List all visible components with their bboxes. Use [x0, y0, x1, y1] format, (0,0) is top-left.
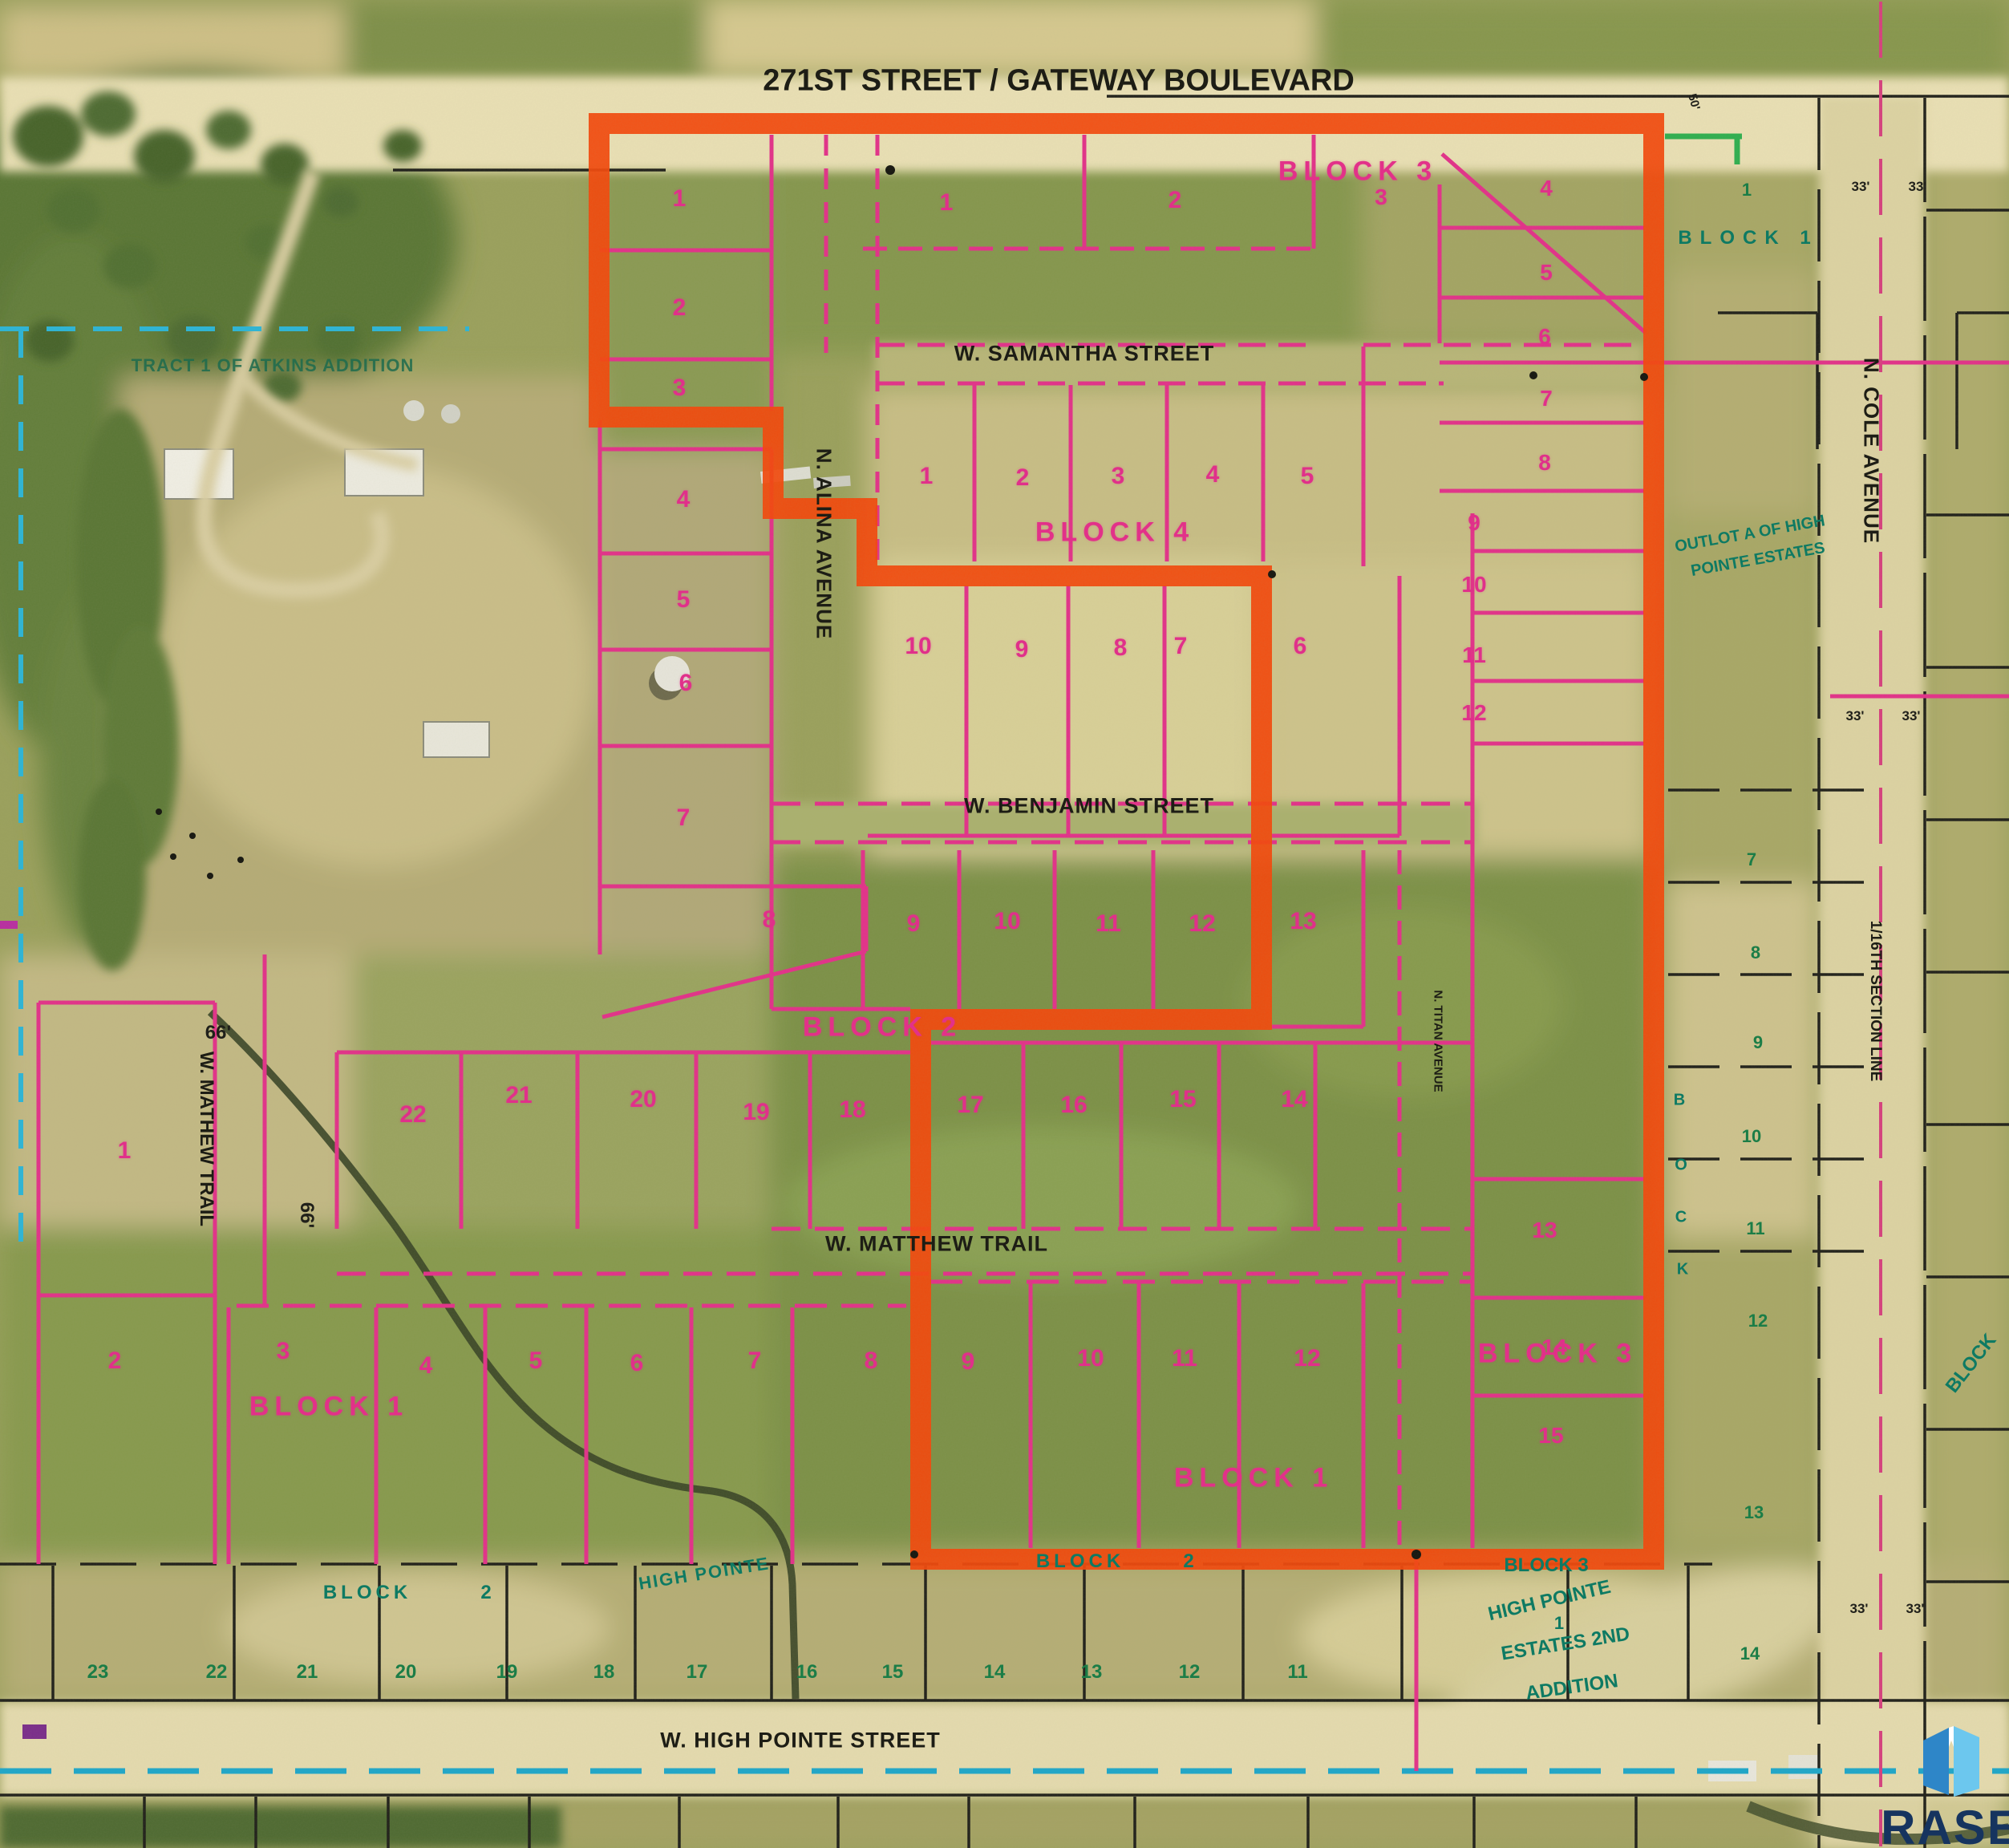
hp2-label: ESTATES 2ND: [1500, 1623, 1631, 1666]
adj-block-letter: B: [1674, 1092, 1685, 1110]
lot-number: 4: [1540, 176, 1553, 201]
lot-number: 9: [1468, 510, 1480, 536]
lot-number: 6: [679, 670, 693, 697]
lot-number: 6: [630, 1350, 644, 1377]
dim-66: 66': [295, 1202, 318, 1228]
rase-logo-icon: [1893, 1723, 2009, 1803]
hp-label: HIGH POINTE: [637, 1553, 771, 1594]
lot-number: 10: [1461, 572, 1486, 598]
adj-block-letter: O: [1675, 1157, 1687, 1175]
hp-block-label: BLOCK: [323, 1582, 411, 1604]
lot-number: 13: [1532, 1218, 1557, 1243]
street-cole: N. COLE AVENUE: [1859, 358, 1884, 544]
street-271st-gateway: 271ST STREET / GATEWAY BOULEVARD: [763, 64, 1355, 99]
hp-lot-number: 17: [687, 1661, 708, 1684]
adj-lot-number: 9: [1753, 1032, 1763, 1053]
lot-number: 7: [677, 804, 691, 832]
street-samantha: W. SAMANTHA STREET: [954, 342, 1215, 367]
lot-number: 5: [677, 586, 691, 614]
lot-number: 2: [108, 1347, 122, 1375]
lot-number: 2: [673, 294, 687, 322]
rase-logo-text: RASE: [1881, 1800, 2009, 1848]
dim-33: 33': [1850, 1601, 1869, 1617]
adj-block-1-label: BLOCK 1: [1678, 227, 1818, 249]
lot-number: 1: [118, 1137, 132, 1165]
hp2-label: HIGH POINTE: [1486, 1576, 1613, 1626]
lot-number: 10: [905, 633, 931, 660]
hp-lot-number: 15: [882, 1661, 904, 1684]
hp-block-label: 2: [1183, 1550, 1193, 1573]
street-high-pointe: W. HIGH POINTE STREET: [660, 1728, 941, 1753]
dim-50: 50': [1685, 92, 1703, 111]
hp-lot-number: 22: [206, 1661, 228, 1684]
lot-number: 12: [1294, 1345, 1320, 1372]
hp-lot-number: 19: [496, 1661, 518, 1684]
adj-block-letter: C: [1675, 1209, 1687, 1227]
hp-lot-number: 18: [593, 1661, 615, 1684]
lot-number: 8: [1114, 634, 1128, 662]
adj-lot-number: 12: [1748, 1311, 1768, 1331]
lot-number: 5: [1540, 260, 1553, 286]
lot-number: 1: [920, 463, 934, 490]
lot-number: 9: [1015, 636, 1029, 663]
hp-block-label: 2: [480, 1582, 491, 1604]
lot-number: 6: [1294, 633, 1307, 660]
hp-lot-number: 11: [1287, 1661, 1307, 1684]
lot-number: 5: [529, 1347, 543, 1375]
hp2-label: 1: [1554, 1613, 1564, 1634]
adj-block-letter: K: [1677, 1261, 1688, 1279]
lot-number: 3: [1375, 184, 1387, 210]
block-3-label: BLOCK 3: [1278, 156, 1437, 188]
lot-number: 21: [505, 1082, 532, 1109]
rase-logo: RASE: [1893, 1723, 2009, 1848]
hp-lot-number: 16: [796, 1661, 818, 1684]
lot-number: 20: [630, 1086, 656, 1113]
lot-number: 2: [1016, 464, 1030, 492]
street-titan: N. TITAN AVENUE: [1432, 990, 1445, 1092]
dim-33: 33': [1906, 1601, 1925, 1617]
adj-lot-number: 1: [1742, 180, 1752, 201]
lot-number: 19: [743, 1099, 769, 1126]
lot-number: 14: [1281, 1086, 1307, 1113]
adj-lot-number: 11: [1746, 1218, 1764, 1239]
section-line-label: 1/16TH SECTION LINE: [1866, 921, 1884, 1082]
hp2-label: ADDITION: [1525, 1670, 1620, 1705]
lot-number: 6: [1538, 324, 1551, 350]
lot-number: 17: [957, 1092, 983, 1119]
hp2-label: BLOCK 3: [1504, 1554, 1588, 1577]
hp-lot-number: 23: [87, 1661, 109, 1684]
lot-number: 4: [677, 486, 691, 513]
lot-number: 9: [962, 1348, 975, 1376]
plat-text-overlay: 271ST STREET / GATEWAY BOULEVARDW. SAMAN…: [0, 0, 2009, 1848]
lot-number: 15: [1538, 1423, 1563, 1449]
street-benjamin: W. BENJAMIN STREET: [964, 794, 1214, 819]
lot-number: 7: [1540, 386, 1553, 411]
lot-number: 8: [1538, 450, 1551, 476]
lot-number: 2: [1169, 187, 1182, 214]
adj-lot-number: 13: [1744, 1502, 1764, 1523]
lot-number: 18: [839, 1096, 865, 1124]
lot-number: 3: [1112, 463, 1125, 490]
adj-lot-number: 7: [1747, 849, 1756, 870]
street-mathew-trail-v: W. MATHEW TRAIL: [195, 1052, 217, 1226]
lot-number: 11: [1462, 642, 1486, 668]
lot-number: 3: [673, 375, 687, 402]
lot-number: 22: [399, 1101, 426, 1129]
lot-number: 12: [1461, 700, 1486, 726]
dim-33: 33': [1909, 179, 1927, 195]
lot-number: 1: [673, 185, 687, 213]
lot-number: 8: [865, 1347, 878, 1375]
lot-number: 3: [277, 1338, 290, 1365]
dim-33: 33': [1852, 179, 1870, 195]
lot-number: 4: [1206, 461, 1220, 488]
lot-number: 16: [1060, 1092, 1087, 1119]
adj-lot-number: 10: [1742, 1126, 1761, 1147]
block-2-label: BLOCK 2: [803, 1012, 962, 1044]
lot-number: 14: [1541, 1335, 1566, 1360]
lot-number: 12: [1189, 910, 1215, 938]
hp-lot-number: 12: [1179, 1661, 1201, 1684]
lot-number: 11: [1096, 910, 1121, 938]
lot-number: 4: [419, 1352, 433, 1380]
hp-lot-number: 13: [1081, 1661, 1103, 1684]
lot-number: 7: [748, 1347, 762, 1375]
hp-lot-number: 21: [297, 1661, 318, 1684]
lot-number: 1: [940, 189, 954, 217]
dim-66: 66': [205, 1022, 231, 1044]
adj-lot-number: 14: [1740, 1643, 1760, 1664]
lot-number: 15: [1169, 1086, 1196, 1113]
lot-number: 11: [1172, 1345, 1197, 1372]
block-1-label: BLOCK 1: [1174, 1463, 1333, 1494]
lot-number: 10: [994, 908, 1020, 935]
block-1-label: BLOCK 1: [249, 1392, 408, 1423]
hp-lot-number: 14: [984, 1661, 1006, 1684]
lot-number: 9: [907, 910, 921, 938]
lot-number: 10: [1077, 1345, 1104, 1372]
tract-atkins-label: TRACT 1 OF ATKINS ADDITION: [132, 355, 415, 376]
street-alina: N. ALINA AVENUE: [812, 448, 836, 639]
lot-number: 7: [1174, 633, 1188, 660]
dim-33: 33': [1902, 708, 1921, 724]
hp-lot-number: 20: [395, 1661, 417, 1684]
aerial-plat-map[interactable]: 271ST STREET / GATEWAY BOULEVARDW. SAMAN…: [0, 0, 2009, 1848]
adj-block-label: BLOCK: [1942, 1330, 2002, 1397]
lot-number: 13: [1290, 908, 1316, 935]
hp-block-label: BLOCK: [1036, 1550, 1124, 1573]
dim-33: 33': [1846, 708, 1865, 724]
block-4-label: BLOCK 4: [1035, 517, 1194, 549]
street-matthew-trail: W. MATTHEW TRAIL: [825, 1232, 1048, 1257]
lot-number: 5: [1301, 463, 1314, 490]
adj-lot-number: 8: [1751, 942, 1760, 963]
lot-number: 8: [763, 906, 776, 934]
